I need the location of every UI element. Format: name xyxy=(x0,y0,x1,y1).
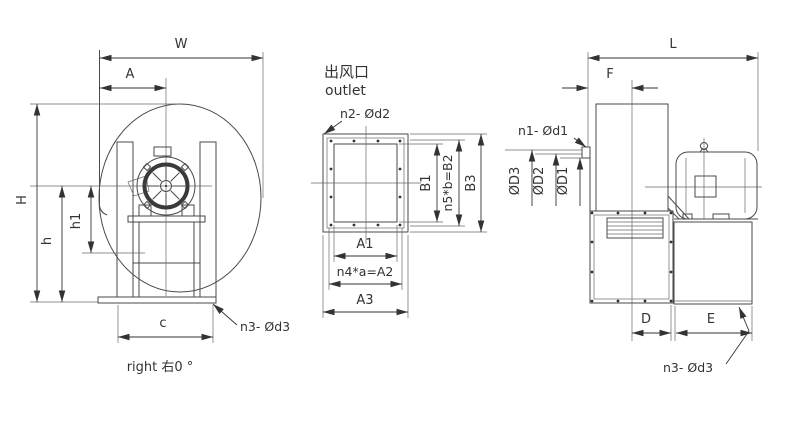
dim-B3-label: B3 xyxy=(464,174,479,191)
dim-OD3: ØD3 xyxy=(508,150,532,206)
motor-base-frame xyxy=(674,222,752,304)
pedestal xyxy=(128,216,205,297)
dim-A: A xyxy=(100,67,166,88)
leader-n2-label: n2- Ød2 xyxy=(340,106,390,121)
dim-B2-label: n5*b=B2 xyxy=(440,154,455,211)
leader-n3-side-label: n3- Ød3 xyxy=(663,360,713,375)
dim-W-label: W xyxy=(175,37,188,52)
terminal-box xyxy=(154,147,171,156)
leader-n1: n1- Ød1 xyxy=(518,123,586,147)
dim-h1-label: h1 xyxy=(69,213,84,230)
center-lines-front xyxy=(30,78,212,302)
dim-L-label: L xyxy=(669,37,677,52)
side-view: ØD3 ØD2 ØD1 n1- Ød1 xyxy=(505,37,762,375)
outlet-title-en: outlet xyxy=(325,83,366,99)
dim-A1-label: A1 xyxy=(356,237,373,252)
dim-OD3-label: ØD3 xyxy=(508,167,523,196)
motor-nameplate xyxy=(695,176,716,197)
base-plate xyxy=(98,297,216,303)
dim-F: F xyxy=(562,67,658,88)
dim-h: h xyxy=(40,186,62,302)
outlet-title-cn: 出风口 xyxy=(324,63,369,81)
dim-OD2-label: ØD2 xyxy=(532,167,547,196)
dim-L: L xyxy=(588,37,758,58)
dim-E-label: E xyxy=(707,312,715,327)
leader-n3-front-label: n3- Ød3 xyxy=(240,319,290,334)
motor-side xyxy=(674,143,758,220)
dim-A2-label: n4*a=A2 xyxy=(337,264,394,279)
dim-OD1-label: ØD1 xyxy=(556,167,571,196)
dim-c: c xyxy=(118,305,213,343)
motor-front xyxy=(128,147,195,216)
dim-F-label: F xyxy=(606,67,613,82)
drawing-canvas: W A H h h1 c n3- Ød3 right 右0 ° xyxy=(0,0,790,422)
leader-n2: n2- Ød2 xyxy=(324,106,390,134)
louver-vent xyxy=(607,218,663,238)
orientation-caption: right 右0 ° xyxy=(127,360,194,375)
casing-bolt-holes xyxy=(591,212,673,303)
leader-n1-label: n1- Ød1 xyxy=(518,123,568,138)
dim-h-label: h xyxy=(40,237,55,245)
dim-H-label: H xyxy=(15,195,30,205)
outlet-view: 出风口 outlet n2- Ød2 B1 xyxy=(311,63,487,318)
fan-dimension-drawing: W A H h h1 c n3- Ød3 right 右0 ° xyxy=(0,0,790,422)
center-lines-side xyxy=(588,52,762,341)
dim-W: W xyxy=(100,37,263,58)
dim-D-label: D xyxy=(641,312,651,327)
dim-H: H xyxy=(15,104,37,302)
dim-D: D xyxy=(632,305,671,341)
casing-side-panel xyxy=(590,211,673,303)
dim-B1-label: B1 xyxy=(419,174,434,191)
leader-n3-front: n3- Ød3 xyxy=(213,304,290,334)
dim-OD2: ØD2 xyxy=(532,154,556,206)
dim-A1: A1 xyxy=(334,225,397,262)
dim-A3-label: A3 xyxy=(356,293,373,308)
dim-OD1: ØD1 xyxy=(556,158,580,206)
dim-A-label: A xyxy=(126,67,135,82)
dim-c-label: c xyxy=(159,316,166,331)
dim-h1: h1 xyxy=(69,186,91,253)
front-view: W A H h h1 c n3- Ød3 right 右0 ° xyxy=(15,37,290,375)
